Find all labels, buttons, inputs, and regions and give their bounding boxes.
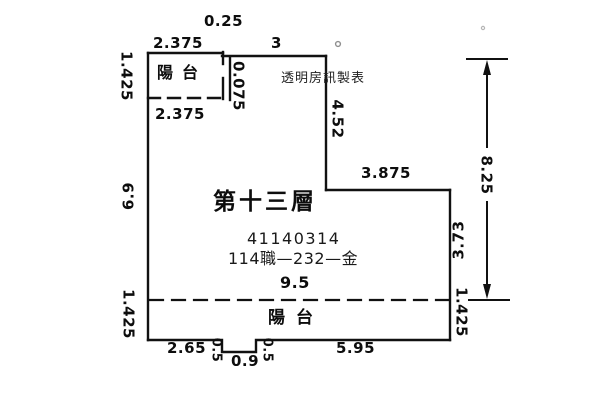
dim-mid-width-label: 3.875 bbox=[361, 166, 411, 181]
scan-artifact-dot bbox=[481, 26, 484, 29]
watermark: 透明房訊製表 bbox=[281, 72, 365, 85]
unit-code: 114職—232—金 bbox=[228, 251, 358, 267]
dim-balcony-depth-bottom-right-label: 1.425 bbox=[454, 287, 469, 337]
dim-right-mid-label: 3.73 bbox=[452, 220, 467, 259]
dim-left-main-label: 6.9 bbox=[122, 182, 137, 210]
dim-right-upper-label: 4.52 bbox=[330, 99, 345, 138]
serial-number: 41140314 bbox=[247, 231, 340, 247]
balcony-bottom-label: 陽台 bbox=[268, 310, 324, 327]
dim-top-step-label: 0.25 bbox=[204, 14, 243, 29]
dim-top-balcony-width-label: 2.375 bbox=[153, 36, 203, 51]
dim-notch-width-label: 0.9 bbox=[231, 354, 259, 369]
dim-balcony-depth-bottom-left-label: 1.425 bbox=[121, 289, 136, 339]
dim-balcony-inner-width-label: 2.375 bbox=[155, 107, 205, 122]
dim-interior-width-label: 9.5 bbox=[280, 275, 310, 291]
dim-notch-depth-left-label: 0.5 bbox=[210, 338, 223, 363]
floor-title: 第十三層 bbox=[213, 191, 317, 214]
arrowhead-up bbox=[483, 60, 491, 75]
dim-notch-depth-right-label: 0.5 bbox=[261, 338, 274, 363]
scan-artifact-dot bbox=[336, 42, 341, 47]
arrowhead-down bbox=[483, 284, 491, 299]
dim-bottom-right-label: 5.95 bbox=[336, 341, 375, 356]
floorplan-canvas: 0.25 2.375 3 2.375 3.875 9.5 2.65 0.9 5.… bbox=[0, 0, 602, 401]
dim-wall-offset-label: 0.075 bbox=[231, 61, 246, 111]
balcony-top-label: 陽台 bbox=[157, 65, 207, 81]
dim-bottom-left-label: 2.65 bbox=[167, 341, 206, 356]
dim-balcony-depth-top-left-label: 1.425 bbox=[119, 51, 134, 101]
dim-top-main-width-label: 3 bbox=[271, 36, 282, 51]
dim-right-total-label: 8.25 bbox=[479, 155, 494, 194]
